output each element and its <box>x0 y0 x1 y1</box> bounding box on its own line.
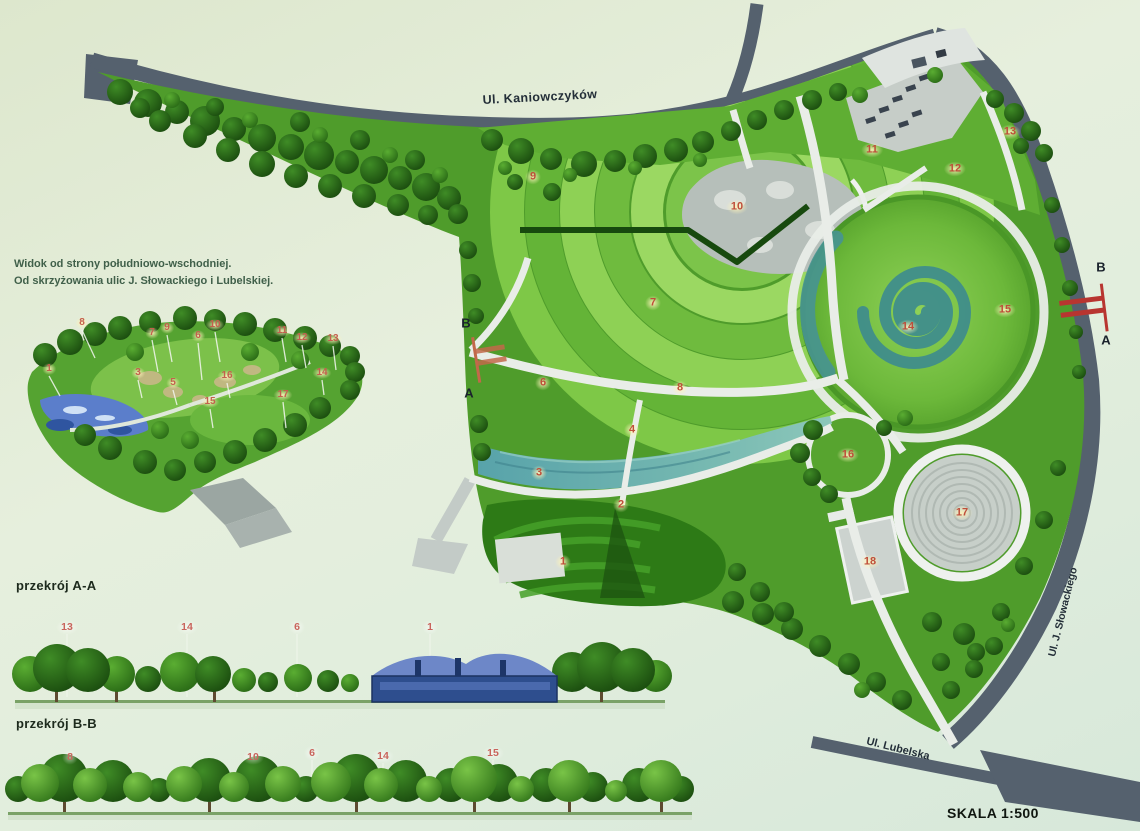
perspective-marker: 8 <box>75 317 89 329</box>
section-cut-letter: B <box>1096 260 1105 275</box>
perspective-marker: 16 <box>217 370 236 382</box>
perspective-view <box>28 306 365 548</box>
plan-marker: 2 <box>613 498 629 513</box>
plan-marker: 9 <box>525 170 541 185</box>
perspective-marker: 5 <box>166 377 180 389</box>
perspective-marker: 11 <box>273 325 292 337</box>
plan-marker: 11 <box>861 143 883 158</box>
section-bb-title: przekrój B-B <box>16 716 97 731</box>
perspective-marker: 7 <box>145 327 159 339</box>
perspective-marker: 13 <box>323 333 342 345</box>
perspective-marker: 3 <box>131 367 145 379</box>
section-bb-marker: 15 <box>482 746 504 761</box>
section-aa-marker: 1 <box>422 620 438 635</box>
perspective-caption-line1: Widok od strony południowo-wschodniej. <box>14 256 273 273</box>
plan-marker: 8 <box>672 381 688 396</box>
plan-marker: 4 <box>624 423 640 438</box>
section-building <box>372 654 557 702</box>
plan-marker: 3 <box>531 466 547 481</box>
perspective-marker: 15 <box>200 396 219 408</box>
perspective-marker: 6 <box>191 330 205 342</box>
section-aa-drawing <box>12 634 672 709</box>
section-bb-marker: 8 <box>62 750 78 765</box>
section-bb-marker: 10 <box>242 750 264 765</box>
section-bb-marker: 6 <box>304 746 320 761</box>
perspective-caption: Widok od strony południowo-wschodniej. O… <box>14 256 273 290</box>
section-aa-marker: 13 <box>56 620 78 635</box>
section-cut-letter: B <box>461 316 470 331</box>
perspective-marker: 12 <box>292 332 311 344</box>
perspective-caption-line2: Od skrzyżowania ulic J. Słowackiego i Lu… <box>14 273 273 290</box>
section-bb-drawing <box>5 754 694 820</box>
section-aa-marker: 6 <box>289 620 305 635</box>
perspective-marker: 14 <box>312 367 331 379</box>
section-cut-letter: A <box>1101 333 1110 348</box>
plan-artwork <box>0 0 1140 831</box>
perspective-marker: 1 <box>42 363 56 375</box>
plan-marker: 1 <box>555 555 571 570</box>
plan-marker: 7 <box>645 296 661 311</box>
plan-marker: 6 <box>535 376 551 391</box>
section-aa-title: przekrój A-A <box>16 578 96 593</box>
perspective-marker: 17 <box>273 389 292 401</box>
perspective-marker: 9 <box>160 322 174 334</box>
perspective-marker: 10 <box>205 319 224 331</box>
scale-label: SKALA 1:500 <box>947 805 1039 821</box>
section-aa-marker: 14 <box>176 620 198 635</box>
park-masterplan-board: Ul. Kaniowczyków Ul. J. Słowackiego Ul. … <box>0 0 1140 831</box>
section-bb-marker: 14 <box>372 749 394 764</box>
section-cut-letter: A <box>464 386 473 401</box>
